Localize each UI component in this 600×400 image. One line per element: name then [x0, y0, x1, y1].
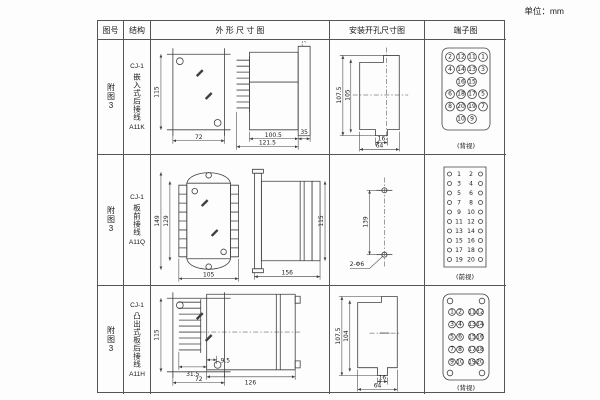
row2-terminal-diagram: 1234567891011121314151617181920 (前视)	[425, 155, 506, 286]
structure-series: CJ-1	[130, 63, 144, 70]
mounting-hole-drawing-a11h: 107.5 104 16 64	[330, 286, 424, 394]
svg-text:10: 10	[456, 358, 464, 365]
svg-text:13: 13	[455, 227, 463, 234]
svg-text:8: 8	[469, 199, 473, 206]
svg-text:7: 7	[450, 346, 454, 353]
svg-text:8: 8	[448, 103, 452, 110]
structure-code: A11K	[129, 124, 144, 131]
structure-type: 嵌入式后接线	[132, 73, 143, 121]
terminal-diagram-a11q: 1234567891011121314151617181920 (前视)	[425, 155, 506, 286]
row3-outline-drawing: 115 72 9.5 31.5 126	[151, 286, 330, 394]
terminal-circles: 1234567891011121314151617181920	[448, 170, 483, 262]
svg-text:13: 13	[468, 65, 476, 72]
dim-cutout-inner-h: 104	[343, 330, 350, 342]
row2-fig-no: 附图3	[98, 155, 124, 286]
row3-structure: CJ-1 凸出式板后接线 A11H	[124, 286, 151, 394]
corner-screw-icon	[447, 370, 453, 376]
structure-code: A11H	[129, 371, 145, 378]
dim-side-length: 156	[282, 269, 294, 276]
svg-text:1: 1	[450, 308, 454, 315]
row3-terminal-diagram: 1234567891011121314151617181920 (背视)	[425, 286, 506, 394]
svg-text:14: 14	[467, 227, 475, 234]
terminal-caption: (背视)	[457, 383, 475, 392]
svg-text:5: 5	[457, 189, 461, 196]
svg-text:15: 15	[468, 78, 476, 85]
dim-tab-width: 16	[379, 375, 387, 382]
dim-side-total: 121.5	[259, 139, 276, 146]
dim-front-width: 72	[195, 133, 203, 140]
mounting-screw-icon	[176, 302, 183, 309]
svg-text:4: 4	[469, 180, 473, 187]
outline-drawing-a11k: 115 72 100.5 35 121.5	[151, 40, 329, 155]
svg-text:12: 12	[467, 218, 475, 225]
svg-text:12: 12	[476, 308, 484, 315]
fig-no-label: 附图3	[107, 83, 115, 111]
svg-text:15: 15	[468, 333, 476, 340]
fig-no-label: 附图3	[107, 206, 115, 234]
row2-structure: CJ-1 板前接线 A11Q	[124, 155, 151, 286]
svg-text:15: 15	[455, 237, 463, 244]
svg-text:16: 16	[476, 333, 484, 340]
svg-text:2: 2	[448, 53, 452, 60]
svg-text:8: 8	[458, 346, 462, 353]
svg-text:10: 10	[467, 208, 475, 215]
dim-offset: 9.5	[221, 357, 231, 364]
row1-outline-drawing: 115 72 100.5 35 121.5	[151, 40, 330, 155]
svg-text:14: 14	[476, 321, 484, 328]
dim-cutout-width: 64	[374, 382, 382, 389]
corner-screw-icon	[447, 298, 453, 304]
dim-front-width: 105	[203, 271, 215, 278]
mounting-screw-icon	[176, 57, 183, 64]
svg-text:17: 17	[468, 346, 476, 353]
svg-text:5: 5	[450, 333, 454, 340]
dim-cutout-outer-h: 107.5	[335, 327, 342, 344]
terminal-circles: 2121114141331615618175820197109	[446, 52, 488, 123]
svg-text:4: 4	[448, 65, 452, 72]
dim-cutout-inner-h: 105	[344, 89, 351, 101]
dim-side-length: 126	[245, 380, 257, 387]
mounting-screw-icon	[214, 119, 221, 126]
mounting-hole-drawing-a11k: 107.5 105 16 64	[330, 40, 424, 155]
svg-text:1: 1	[481, 53, 485, 60]
svg-text:18: 18	[467, 246, 475, 253]
dim-hole-span: 139	[363, 216, 370, 228]
dim-pin-length: 31.5	[186, 371, 199, 378]
dim-front-outer-h: 149	[154, 215, 161, 227]
svg-text:7: 7	[481, 103, 485, 110]
svg-text:5: 5	[481, 90, 485, 97]
svg-text:16: 16	[457, 78, 465, 85]
dim-side-flange: 35	[300, 128, 308, 135]
dim-cutout-outer-h: 107.5	[336, 86, 343, 103]
svg-text:3: 3	[457, 180, 461, 187]
svg-text:2: 2	[469, 170, 473, 177]
svg-text:18: 18	[476, 346, 484, 353]
dim-cutout-width: 64	[376, 142, 384, 149]
svg-text:11: 11	[455, 218, 463, 225]
row3-mounting-drawing: 107.5 104 16 64	[330, 286, 425, 394]
svg-text:6: 6	[469, 189, 473, 196]
row3-fig-no: 附图3	[98, 286, 124, 394]
svg-text:11: 11	[468, 53, 476, 60]
manual-page: { "unit_label": "单位：mm", "colors": {"lin…	[0, 0, 600, 400]
svg-text:9: 9	[457, 208, 461, 215]
mounting-hole-drawing-a11q: 139 2-Φ6	[330, 155, 424, 286]
unit-label: 单位：mm	[524, 5, 564, 17]
svg-text:13: 13	[468, 321, 476, 328]
terminal-caption: (前视)	[456, 272, 474, 281]
svg-text:12: 12	[457, 53, 465, 60]
svg-text:20: 20	[457, 103, 465, 110]
svg-text:17: 17	[468, 90, 476, 97]
hole-callout: 2-Φ6	[350, 261, 365, 268]
header-fig-no: 图号	[98, 21, 124, 40]
svg-text:10: 10	[457, 115, 465, 122]
svg-text:6: 6	[448, 90, 452, 97]
svg-text:9: 9	[470, 115, 474, 122]
dim-side-height: 115	[318, 215, 325, 227]
svg-text:3: 3	[481, 65, 485, 72]
svg-text:4: 4	[458, 321, 462, 328]
corner-screw-icon	[479, 370, 485, 376]
svg-text:20: 20	[467, 256, 475, 263]
row1-fig-no: 附图3	[98, 40, 124, 155]
header-structure: 结构	[124, 21, 151, 40]
terminal-caption: (背视)	[457, 141, 475, 150]
svg-text:9: 9	[450, 358, 454, 365]
terminal-circles: 1234567891011121314151617181920	[449, 308, 484, 365]
svg-text:11: 11	[468, 308, 476, 315]
dimension-table: 图号 结构 外 形 尺 寸 图 安装开孔尺寸图 端子图 附图3 CJ-1 嵌入式…	[97, 20, 505, 393]
svg-text:18: 18	[457, 90, 465, 97]
svg-text:19: 19	[455, 256, 463, 263]
structure-type: 板前接线	[132, 204, 143, 236]
svg-text:6: 6	[458, 333, 462, 340]
dim-front-height: 115	[153, 329, 160, 341]
svg-text:19: 19	[468, 358, 476, 365]
structure-series: CJ-1	[130, 302, 144, 309]
structure-type: 凸出式板后接线	[132, 312, 143, 368]
svg-text:19: 19	[468, 103, 476, 110]
header-outline: 外 形 尺 寸 图	[151, 21, 330, 40]
structure-series: CJ-1	[130, 194, 144, 201]
svg-text:1: 1	[457, 170, 461, 177]
outline-drawing-a11h: 115 72 9.5 31.5 126	[151, 286, 329, 394]
fig-no-label: 附图3	[107, 326, 115, 354]
dim-front-height: 115	[153, 86, 160, 98]
svg-text:17: 17	[455, 246, 463, 253]
header-mounting: 安装开孔尺寸图	[330, 21, 425, 40]
row2-outline-drawing: 149 129 105 156 115	[151, 155, 330, 286]
row1-structure: CJ-1 嵌入式后接线 A11K	[124, 40, 151, 155]
dim-side-body: 100.5	[265, 131, 282, 138]
row2-mounting-drawing: 139 2-Φ6	[330, 155, 425, 286]
structure-code: A11Q	[129, 239, 145, 246]
dim-front-inner-h: 129	[163, 215, 170, 227]
terminal-diagram-a11k: 2121114141331615618175820197109 (背视)	[425, 40, 506, 155]
row1-terminal-diagram: 2121114141331615618175820197109 (背视)	[425, 40, 506, 155]
svg-text:3: 3	[450, 321, 454, 328]
row1-mounting-drawing: 107.5 105 16 64	[330, 40, 425, 155]
svg-text:20: 20	[476, 358, 484, 365]
svg-text:14: 14	[457, 65, 465, 72]
outline-drawing-a11q: 149 129 105 156 115	[151, 155, 329, 286]
header-terminal: 端子图	[425, 21, 506, 40]
corner-screw-icon	[479, 298, 485, 304]
terminal-diagram-a11h: 1234567891011121314151617181920 (背视)	[425, 286, 506, 394]
svg-text:7: 7	[457, 199, 461, 206]
svg-text:2: 2	[458, 308, 462, 315]
svg-text:16: 16	[467, 237, 475, 244]
